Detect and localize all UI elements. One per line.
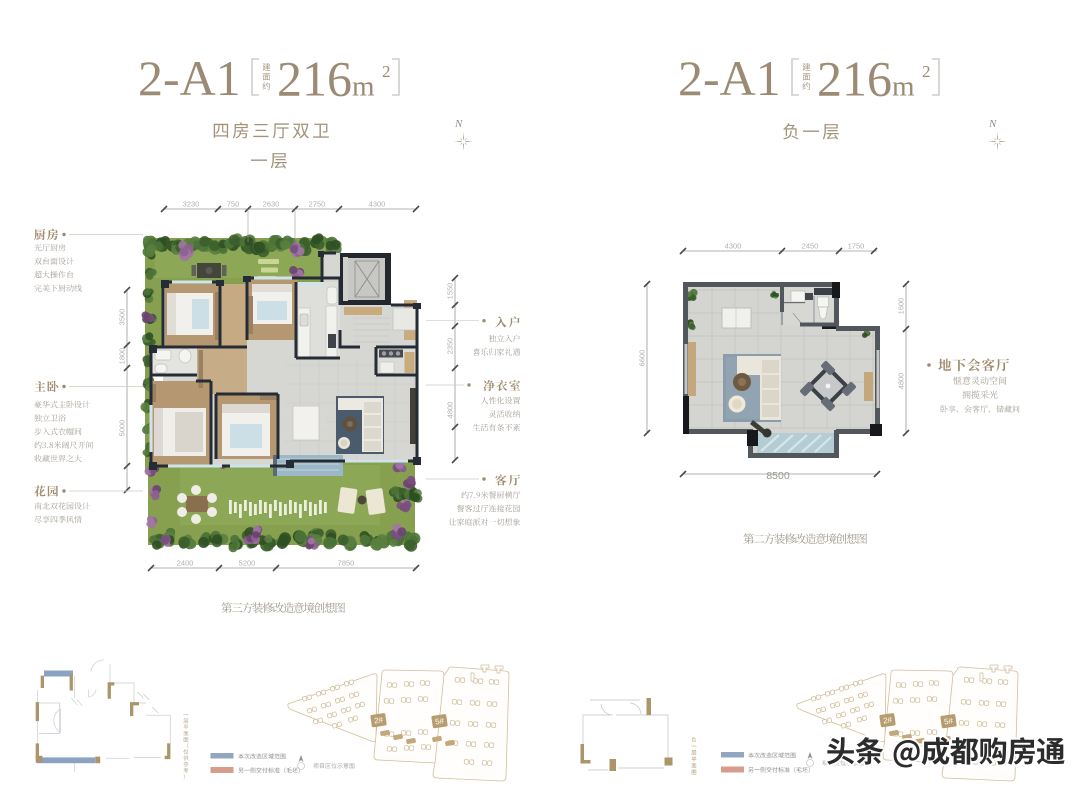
- svg-text:216m: 216m: [817, 51, 915, 107]
- svg-text:5#: 5#: [435, 716, 446, 726]
- svg-text:1800: 1800: [118, 348, 127, 365]
- svg-text:2400: 2400: [177, 559, 194, 568]
- svg-text:2-A1: 2-A1: [138, 50, 241, 106]
- svg-text:2-A1: 2-A1: [678, 50, 781, 106]
- svg-text:4300: 4300: [369, 200, 386, 209]
- svg-text:216m: 216m: [277, 51, 375, 107]
- svg-text:2750: 2750: [309, 200, 326, 209]
- svg-text:4800: 4800: [897, 373, 906, 390]
- svg-text:2: 2: [382, 62, 391, 81]
- svg-text:2350: 2350: [446, 338, 455, 355]
- svg-text:3230: 3230: [183, 200, 200, 209]
- svg-text:5000: 5000: [118, 420, 127, 437]
- svg-text:750: 750: [227, 200, 240, 209]
- svg-text:2630: 2630: [263, 200, 280, 209]
- svg-text:1750: 1750: [848, 242, 865, 251]
- svg-text:3500: 3500: [118, 309, 127, 326]
- svg-text:1550: 1550: [446, 283, 455, 300]
- svg-text:6600: 6600: [638, 350, 647, 367]
- svg-text:8500: 8500: [766, 470, 790, 482]
- svg-text:5#: 5#: [944, 716, 955, 726]
- svg-text:N: N: [454, 118, 463, 130]
- svg-text:2: 2: [922, 62, 931, 81]
- svg-text:2#: 2#: [883, 715, 894, 725]
- svg-text:4800: 4800: [446, 402, 455, 419]
- svg-text:2450: 2450: [802, 242, 819, 251]
- svg-text:7850: 7850: [338, 559, 355, 568]
- svg-text:1600: 1600: [897, 298, 906, 315]
- svg-text:N: N: [988, 118, 997, 130]
- svg-text:5200: 5200: [239, 559, 256, 568]
- svg-text:2#: 2#: [374, 715, 385, 725]
- svg-text:4300: 4300: [725, 242, 742, 251]
